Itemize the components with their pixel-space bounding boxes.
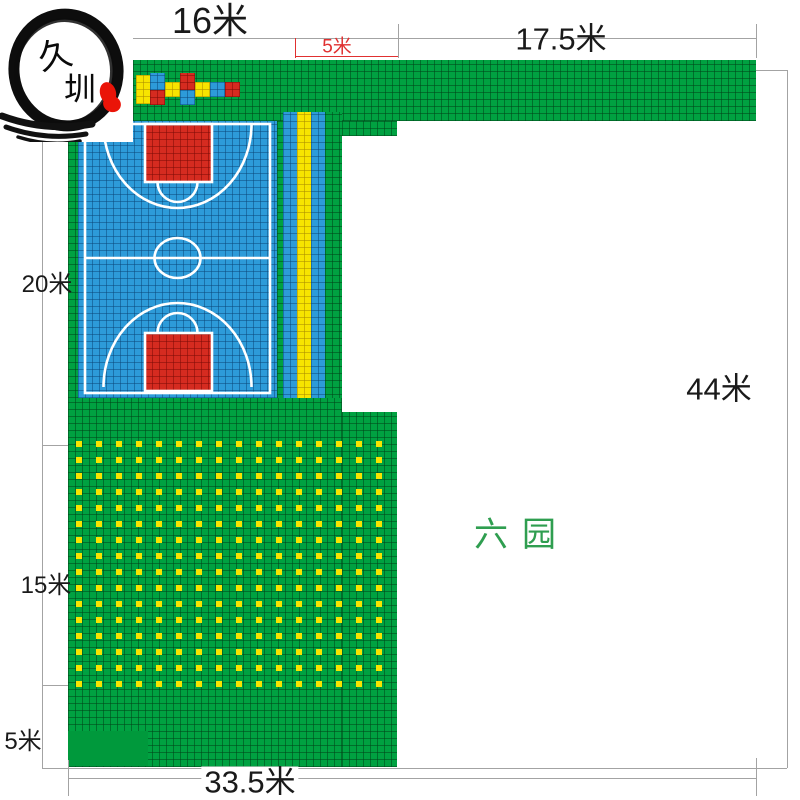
- dimension-label-court-height: 20米: [22, 273, 73, 297]
- walkway-green-right: [325, 112, 342, 437]
- green-step: [342, 121, 397, 136]
- mosaic-tile-red: [180, 73, 195, 90]
- dimension-label-right-height: 44米: [686, 374, 751, 405]
- walkway-stripe-blue-left: [283, 112, 297, 437]
- dimension-label-field-height: 15米: [21, 574, 72, 598]
- right-top-connector: [756, 70, 787, 71]
- top-tick-mid: [398, 24, 399, 58]
- mosaic-tile-red: [150, 90, 165, 105]
- dimension-label-bottom-width: 33.5米: [201, 767, 298, 798]
- top-tick-right: [756, 24, 757, 58]
- dimension-label-top-width: 16米: [172, 3, 248, 39]
- bottom-left-platform: [68, 731, 148, 766]
- site-plan-canvas: 16米 5米 17.5米 44米 20米 15米 5米 33.5米 六园 久 圳: [0, 0, 800, 800]
- walkway-stripe-blue-right: [311, 112, 325, 437]
- mosaic-tile-yellow: [195, 82, 210, 97]
- play-field-main: [68, 398, 342, 767]
- logo-char-2: 圳: [64, 71, 96, 107]
- right-dimension-line: [787, 70, 788, 768]
- company-logo: 久 圳: [0, 0, 133, 142]
- dimension-label-top-right: 17.5米: [515, 24, 606, 55]
- left-dimension-line: [42, 140, 43, 768]
- red-tick: [295, 38, 296, 58]
- mosaic-tile-blue: [150, 73, 165, 90]
- mosaic-tile-red: [225, 82, 240, 97]
- mosaic-tile-yellow: [165, 82, 180, 97]
- area-name-label: 六园: [474, 519, 570, 553]
- mosaic-tile-yellow: [136, 75, 150, 104]
- mosaic-tile-blue: [180, 90, 195, 105]
- walkway-stripe-yellow: [297, 112, 311, 437]
- bottom-dimension-line: [68, 778, 756, 779]
- left-tick-upper: [42, 445, 68, 446]
- bottom-tick-left: [68, 760, 69, 796]
- mosaic-tile-blue: [210, 82, 225, 97]
- dimension-label-bottom-left: 5米: [4, 730, 41, 754]
- left-tick-lower: [42, 685, 68, 686]
- court-lines: [78, 121, 277, 398]
- logo-enso-icon: 久 圳: [0, 0, 133, 142]
- left-green-margin: [68, 121, 78, 398]
- dimension-label-top-section: 5米: [322, 38, 352, 57]
- play-field-right: [342, 412, 397, 767]
- bottom-border-line: [42, 768, 787, 769]
- bottom-tick-right: [756, 758, 757, 796]
